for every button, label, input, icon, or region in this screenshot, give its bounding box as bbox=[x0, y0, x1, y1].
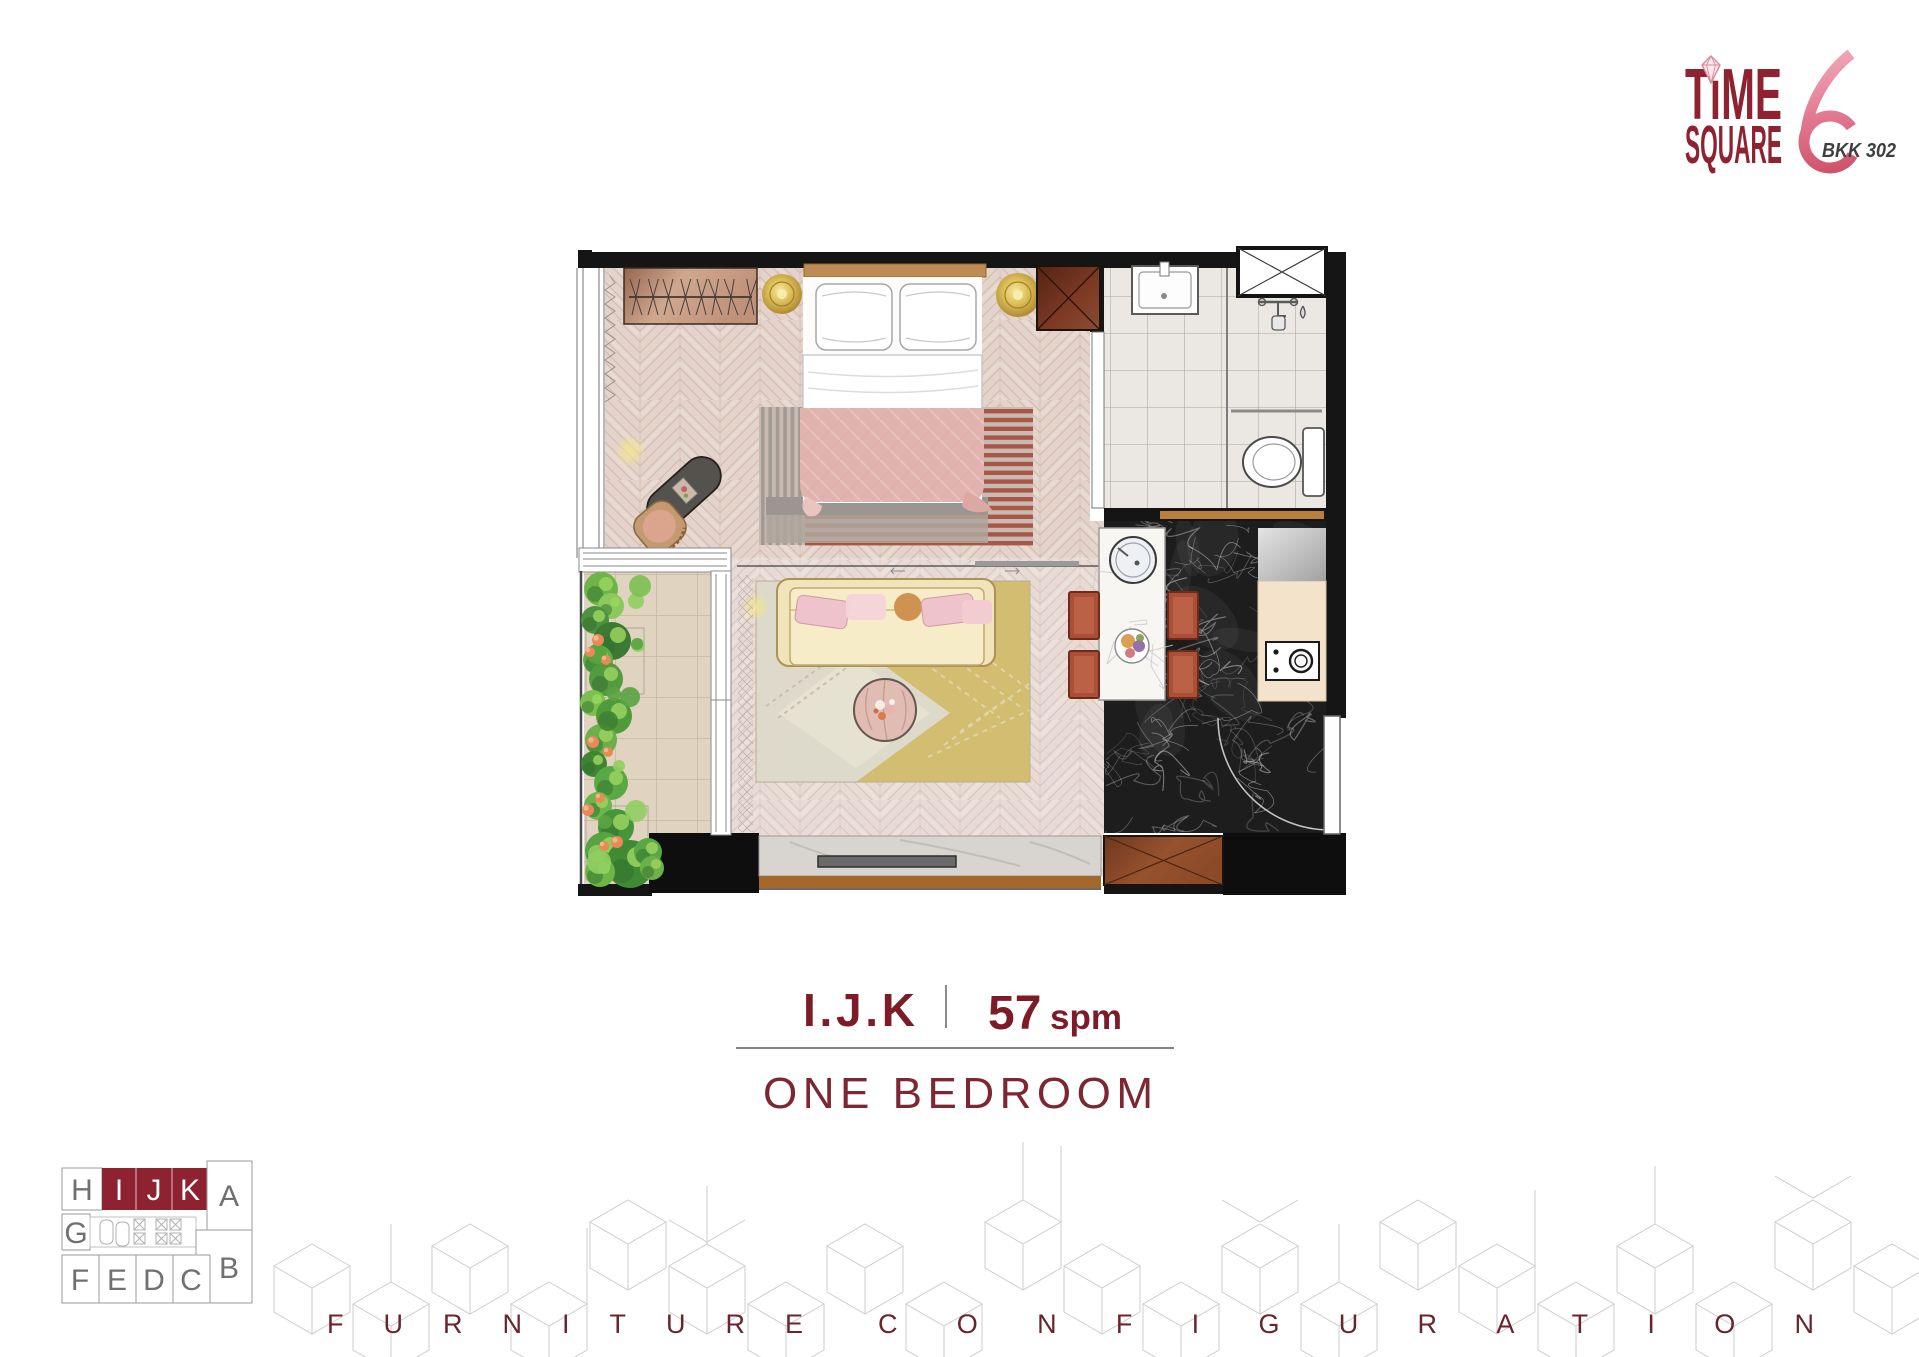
svg-text:I: I bbox=[115, 1174, 123, 1207]
svg-text:C: C bbox=[180, 1264, 202, 1297]
svg-text:E: E bbox=[107, 1264, 127, 1297]
svg-text:K: K bbox=[180, 1174, 200, 1207]
svg-text:I.J.K: I.J.K bbox=[803, 984, 915, 1036]
svg-text:A: A bbox=[219, 1180, 239, 1213]
svg-text:57: 57 bbox=[988, 987, 1041, 1040]
svg-text:F: F bbox=[71, 1264, 89, 1297]
svg-text:B: B bbox=[219, 1252, 239, 1285]
svg-text:G: G bbox=[64, 1217, 87, 1250]
svg-text:J: J bbox=[147, 1174, 162, 1207]
svg-text:H: H bbox=[71, 1174, 93, 1207]
svg-text:FURNITURE: FURNITURE bbox=[327, 1309, 803, 1339]
svg-text:BKK 302: BKK 302 bbox=[1822, 140, 1896, 162]
svg-text:CONFIGURATION: CONFIGURATION bbox=[878, 1309, 1814, 1339]
svg-text:D: D bbox=[143, 1264, 165, 1297]
svg-text:ONE BEDROOM: ONE BEDROOM bbox=[763, 1069, 1155, 1118]
svg-text:SQUARE: SQUARE bbox=[1685, 116, 1782, 175]
svg-text:spm: spm bbox=[1050, 998, 1122, 1037]
